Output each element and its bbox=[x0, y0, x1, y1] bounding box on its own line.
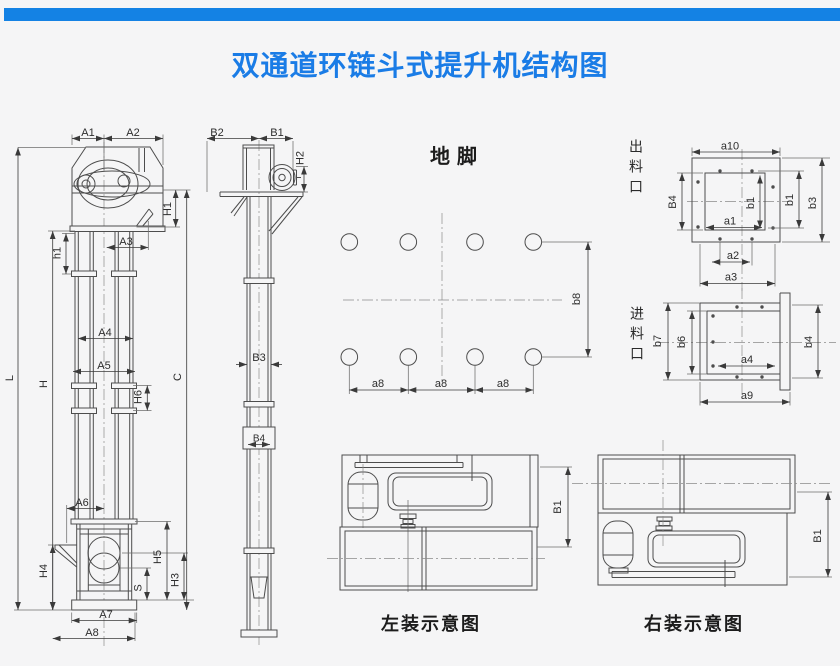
dim-C: C bbox=[172, 373, 184, 381]
side-flange bbox=[244, 278, 274, 284]
flange-bolt bbox=[711, 340, 714, 343]
dim-B3: B3 bbox=[252, 352, 265, 364]
dim-A5: A5 bbox=[97, 360, 110, 372]
head-pulley-inner bbox=[87, 168, 129, 200]
dim-B1: B1 bbox=[270, 127, 283, 139]
dim-b6: b6 bbox=[676, 336, 688, 348]
dim-A7: A7 bbox=[99, 609, 112, 621]
flange-bolt bbox=[760, 375, 763, 378]
right-install-coupling bbox=[657, 517, 672, 521]
dim-H: H bbox=[38, 380, 50, 388]
leg-flange bbox=[112, 271, 137, 277]
flange-bolt bbox=[735, 375, 738, 378]
dim-A4: A4 bbox=[98, 327, 111, 339]
leg-flange bbox=[72, 383, 97, 389]
dim-L: L bbox=[4, 375, 16, 381]
leg-flange bbox=[72, 271, 97, 277]
dim-H6: H6 bbox=[133, 390, 145, 404]
left-install-gearbox bbox=[388, 473, 492, 510]
right-install-coupling bbox=[659, 522, 670, 526]
front-view: A1 A2 A3 A4 A5 A6 A7 A8 h1 H6 H1 L H H4 … bbox=[4, 127, 194, 646]
side-flange bbox=[244, 548, 274, 554]
side-view: B2 B1 H2 B3 B4 bbox=[207, 127, 308, 645]
dim-a9: a9 bbox=[741, 390, 753, 402]
side-head-outline bbox=[220, 145, 303, 234]
flange-bolt bbox=[696, 225, 699, 228]
flange-bolt bbox=[718, 169, 721, 172]
dim-b8: b8 bbox=[571, 293, 583, 305]
flange-bolt bbox=[760, 305, 763, 308]
dim-A8: A8 bbox=[85, 627, 98, 639]
dim-b7: b7 bbox=[652, 335, 664, 347]
side-motor-body bbox=[273, 169, 291, 187]
drawing-canvas: A1 A2 A3 A4 A5 A6 A7 A8 h1 H6 H1 L H H4 … bbox=[0, 0, 840, 666]
dim-B2: B2 bbox=[210, 127, 223, 139]
dim-B1-right: B1 bbox=[812, 529, 824, 542]
flange-bolt bbox=[696, 180, 699, 183]
flange-bolt bbox=[771, 185, 774, 188]
dim-a3: a3 bbox=[725, 272, 737, 284]
right-install-motor bbox=[603, 521, 633, 568]
dim-H4: H4 bbox=[38, 564, 50, 578]
flange-bolt bbox=[711, 314, 714, 317]
discharge-port-view: a10 B4 a1 a2 a3 b1 b1 b3 bbox=[667, 141, 830, 292]
dim-a4: a4 bbox=[741, 354, 753, 366]
flange-bolt bbox=[718, 237, 721, 240]
dim-h1: h1 bbox=[52, 247, 64, 259]
dim-H1: H1 bbox=[162, 202, 174, 216]
anchor-bolt-hole bbox=[467, 234, 484, 251]
flange-bolt bbox=[735, 305, 738, 308]
dim-H3: H3 bbox=[170, 573, 182, 587]
right-install-coupling bbox=[656, 526, 672, 530]
anchor-bolt-hole bbox=[400, 234, 417, 251]
dim-A1: A1 bbox=[81, 127, 94, 139]
dim-A3: A3 bbox=[119, 236, 132, 248]
dim-b1-outer: b1 bbox=[784, 194, 796, 206]
dim-B4-port: B4 bbox=[667, 195, 679, 208]
right-install-view: B1 bbox=[572, 440, 832, 587]
anchor-bolt-hole bbox=[400, 349, 417, 366]
discharge-centerlines bbox=[687, 149, 789, 291]
left-install-head-box bbox=[342, 455, 538, 527]
side-flange bbox=[244, 402, 274, 408]
left-install-view: B1 bbox=[327, 455, 572, 592]
right-install-casing bbox=[598, 455, 795, 513]
dim-b4: b4 bbox=[803, 336, 815, 348]
foundation-centerlines bbox=[343, 213, 562, 381]
feed-port-view: b7 b6 a4 b4 a9 bbox=[652, 288, 836, 406]
drive-shaft-hub bbox=[77, 175, 95, 193]
leg-flange bbox=[112, 408, 137, 414]
left-install-gearbox-inner bbox=[393, 477, 487, 506]
foundation-plan: a8 a8 a8 b8 bbox=[341, 213, 592, 394]
flange-bolt bbox=[711, 364, 714, 367]
anchor-bolt-hole bbox=[525, 234, 542, 251]
dim-a8: a8 bbox=[372, 378, 384, 390]
dim-a1: a1 bbox=[724, 216, 736, 228]
foundation-extension-lines bbox=[349, 242, 592, 394]
dim-B4: B4 bbox=[253, 434, 266, 445]
leg-flange bbox=[112, 383, 137, 389]
discharge-flange-outline bbox=[692, 158, 780, 242]
dim-A6: A6 bbox=[75, 497, 88, 509]
right-install-gearbox-inner bbox=[653, 535, 740, 563]
anchor-bolt-hole bbox=[341, 234, 358, 251]
flange-bolt bbox=[750, 169, 753, 172]
leg-flange bbox=[72, 408, 97, 414]
anchor-bolt-hole bbox=[525, 349, 542, 366]
inlet-hopper bbox=[55, 545, 77, 567]
side-motor-shaft bbox=[279, 174, 285, 180]
side-base-flange bbox=[241, 630, 277, 637]
dim-b1-inner: b1 bbox=[745, 197, 757, 209]
dim-A2: A2 bbox=[126, 127, 139, 139]
right-install-motor-caps bbox=[603, 533, 633, 555]
dim-S: S bbox=[133, 584, 145, 591]
right-install-head-box bbox=[598, 513, 787, 587]
dim-H2: H2 bbox=[295, 151, 307, 165]
flange-bolt bbox=[750, 237, 753, 240]
dim-b3: b3 bbox=[807, 197, 819, 209]
dim-H5: H5 bbox=[152, 550, 164, 564]
dim-B1-left: B1 bbox=[552, 500, 564, 513]
anchor-bolt-hole bbox=[467, 349, 484, 366]
dim-a8: a8 bbox=[497, 378, 509, 390]
right-install-gearbox bbox=[648, 531, 745, 567]
boot-top-flange bbox=[71, 519, 137, 524]
drive-shaft-center bbox=[82, 180, 90, 188]
dim-a8: a8 bbox=[435, 378, 447, 390]
anchor-bolt-hole bbox=[341, 349, 358, 366]
discharge-extension-lines bbox=[677, 148, 830, 287]
dim-a2: a2 bbox=[727, 250, 739, 262]
dim-a10: a10 bbox=[721, 141, 739, 153]
